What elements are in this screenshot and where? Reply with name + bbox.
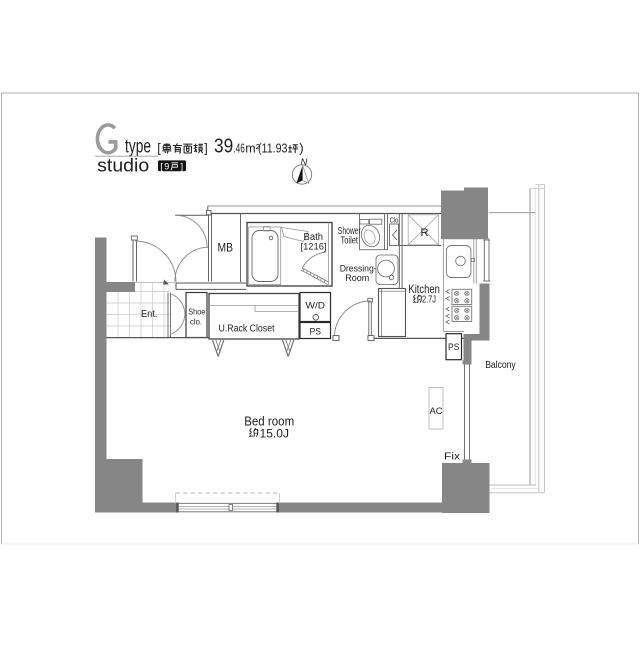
- svg-text:studio: studio: [97, 154, 149, 175]
- svg-text:(11.93: (11.93: [258, 141, 288, 156]
- svg-text:9: 9: [164, 161, 169, 171]
- svg-text:clo.: clo.: [190, 318, 202, 327]
- svg-text:R: R: [421, 227, 429, 239]
- svg-text:[: [: [160, 161, 163, 172]
- svg-text:2.7J: 2.7J: [422, 295, 436, 306]
- svg-text:[1216]: [1216]: [301, 242, 327, 253]
- svg-text:MB: MB: [218, 243, 234, 255]
- svg-text:Room: Room: [345, 273, 369, 284]
- svg-text:]: ]: [204, 141, 207, 155]
- svg-text:[: [: [157, 141, 161, 155]
- svg-text:W/D: W/D: [306, 301, 326, 312]
- svg-text:Balcony: Balcony: [485, 359, 516, 371]
- svg-text:PS: PS: [310, 327, 322, 337]
- svg-text:Shoe: Shoe: [188, 308, 205, 317]
- svg-text:39: 39: [214, 134, 233, 157]
- svg-text:U.Rack Closet: U.Rack Closet: [219, 324, 275, 335]
- svg-text:Fix: Fix: [444, 452, 460, 463]
- svg-text:]: ]: [181, 161, 184, 172]
- svg-text:Bed room: Bed room: [244, 414, 294, 428]
- svg-text:): ): [299, 141, 303, 156]
- svg-text:15.0J: 15.0J: [260, 428, 290, 440]
- svg-text:Clo.: Clo.: [390, 218, 400, 225]
- svg-text:AC: AC: [430, 406, 443, 417]
- svg-text:Ent.: Ent.: [141, 309, 158, 320]
- svg-text:.46: .46: [233, 140, 245, 155]
- svg-text:PS: PS: [448, 342, 460, 352]
- svg-text:Toilet: Toilet: [341, 236, 359, 247]
